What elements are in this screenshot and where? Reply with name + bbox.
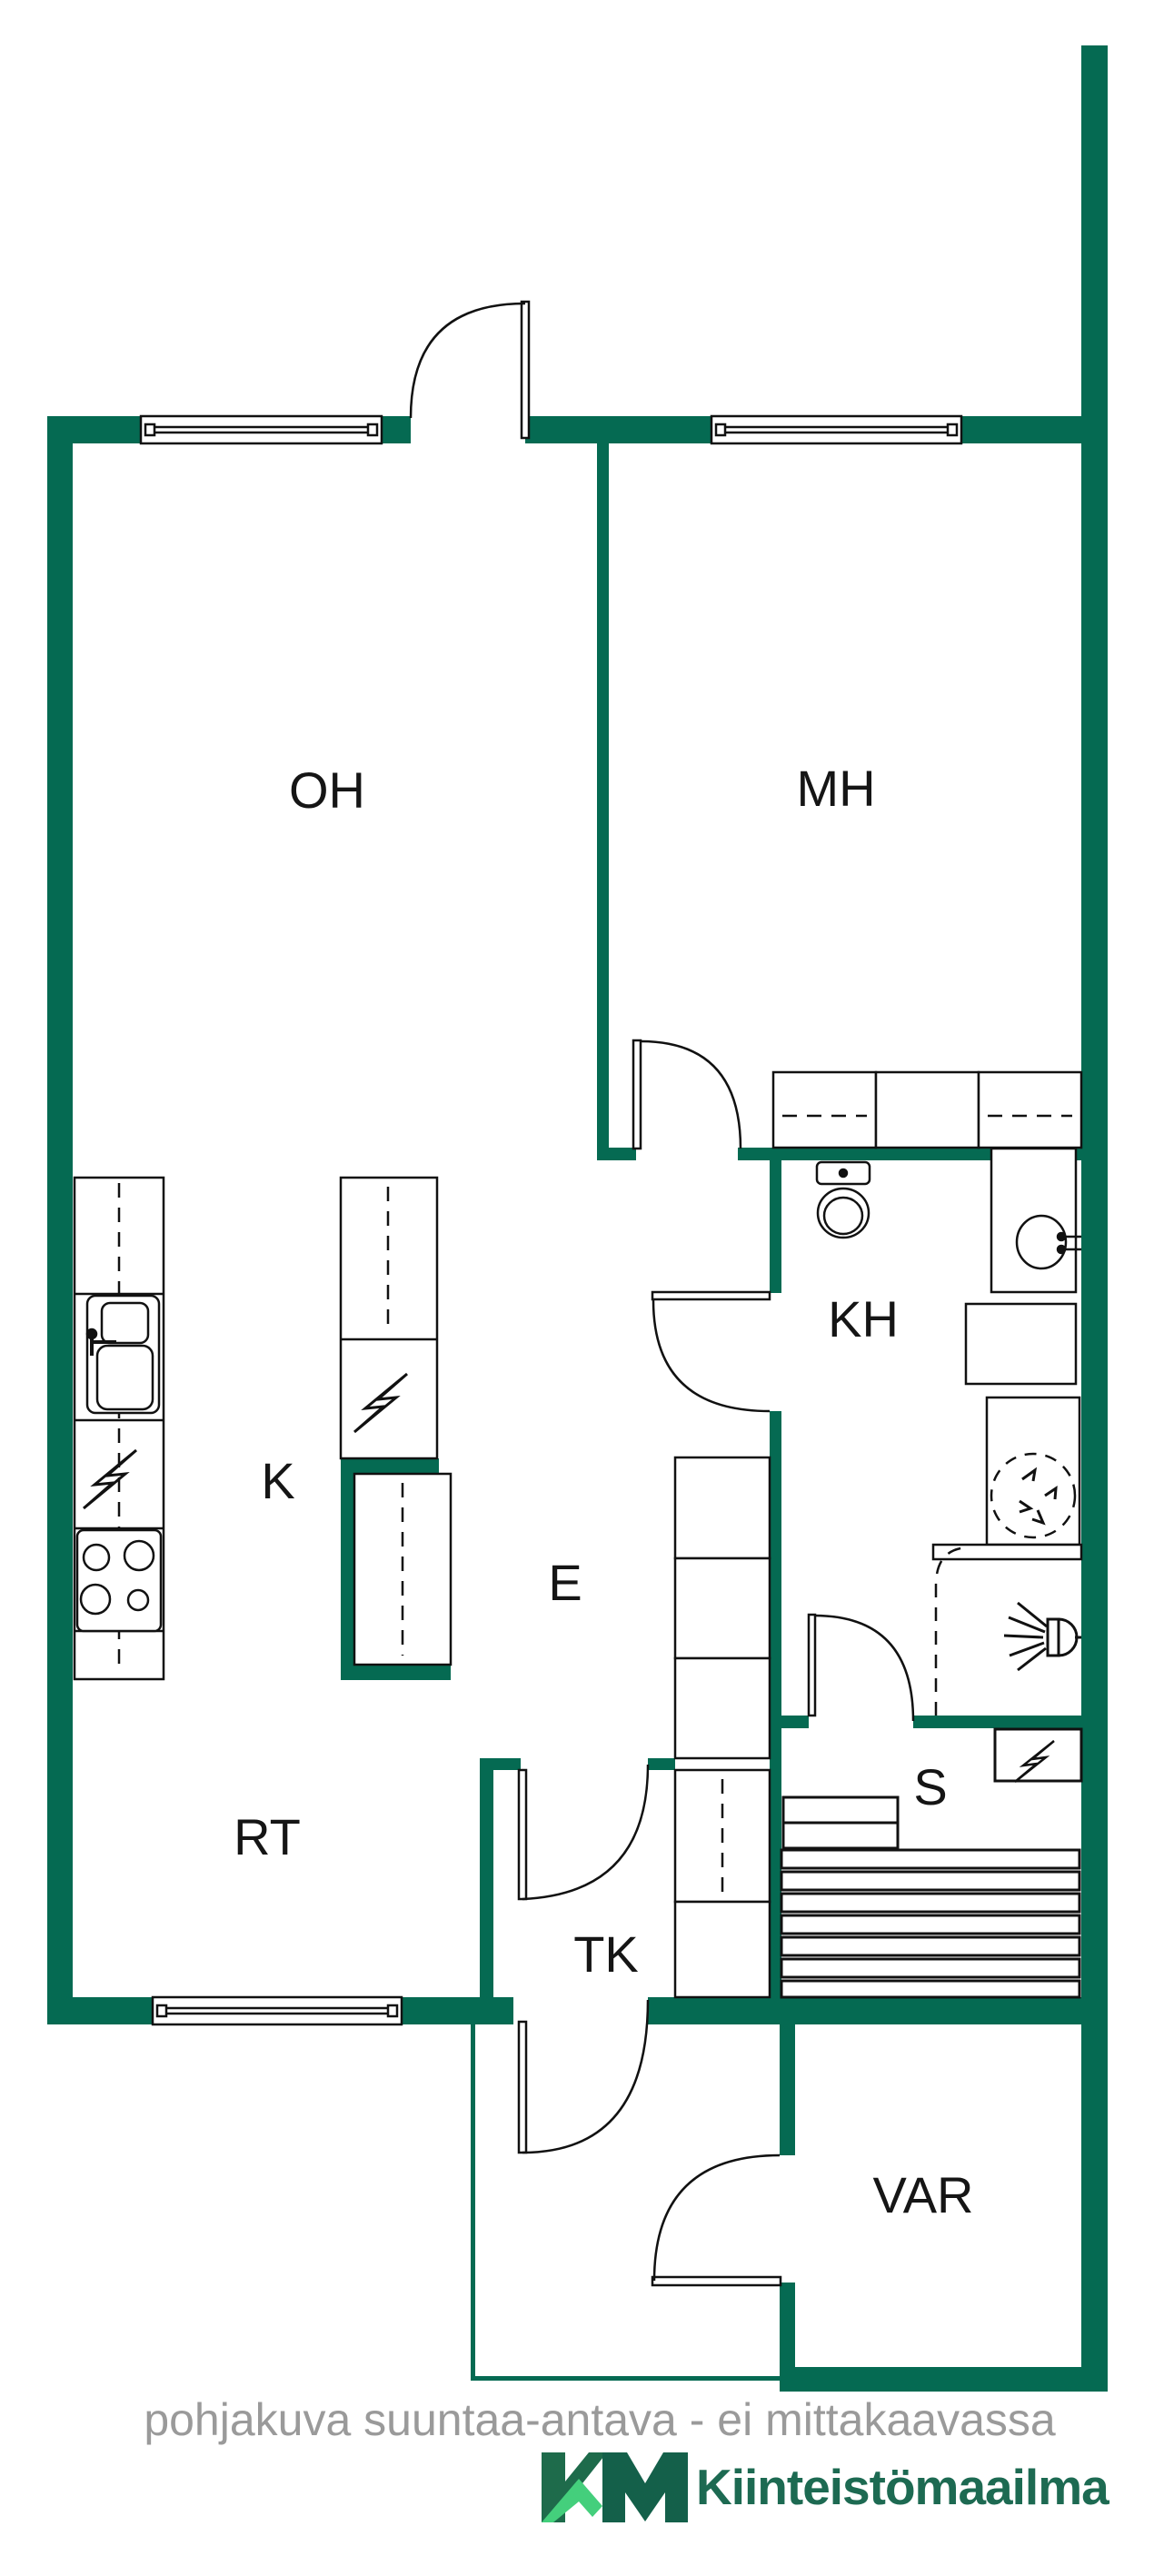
mh-wardrobes bbox=[773, 1072, 1081, 1148]
wall-top-mid2 bbox=[525, 416, 711, 443]
shower-curtain-line bbox=[936, 1547, 969, 1716]
floor-plan-page: OH MH K KH E RT S TK VAR pohjakuva suunt… bbox=[0, 0, 1154, 2576]
terrace-outline-left bbox=[471, 2024, 475, 2381]
stove-icon bbox=[77, 1530, 161, 1631]
tk-exterior-door bbox=[519, 2000, 648, 2153]
room-label-k: K bbox=[261, 1456, 294, 1507]
windows bbox=[141, 416, 961, 2024]
kitchen-island-2 bbox=[354, 1474, 451, 1665]
room-label-oh: OH bbox=[289, 765, 365, 816]
window-mh bbox=[711, 416, 961, 443]
window-oh bbox=[141, 416, 382, 443]
wall-mh-bottom-1 bbox=[609, 1148, 636, 1160]
brand-logo: Kiinteistömaailma bbox=[542, 2450, 1109, 2524]
kitchen-counter bbox=[75, 1178, 164, 1679]
wall-tk-left bbox=[480, 1770, 493, 1997]
brand-logo-text: Kiinteistömaailma bbox=[696, 2451, 1109, 2523]
sauna-heater-icon bbox=[995, 1729, 1081, 1782]
wall-kh-s-1 bbox=[780, 1716, 809, 1728]
wall-s-left bbox=[770, 1728, 781, 1997]
wall-tk-top-1 bbox=[480, 1758, 521, 1770]
room-label-mh: MH bbox=[796, 763, 875, 814]
room-label-kh: KH bbox=[828, 1294, 899, 1345]
km-logo-icon bbox=[542, 2451, 689, 2523]
shower-head-icon bbox=[1004, 1603, 1081, 1670]
wall-bottom-mid bbox=[402, 1997, 513, 2024]
floor-plan-drawing bbox=[0, 0, 1154, 2576]
wall-bottom-left bbox=[47, 1997, 153, 2024]
mh-door bbox=[633, 1040, 741, 1149]
sauna-door bbox=[809, 1615, 913, 1721]
wall-kitchen-stub bbox=[341, 1458, 439, 1474]
room-label-var: VAR bbox=[873, 2170, 974, 2221]
wall-var-bottom bbox=[780, 2367, 1108, 2392]
wall-kh-left-lower bbox=[770, 1411, 781, 1728]
wall-top-mid bbox=[382, 416, 411, 443]
hall-closets bbox=[675, 1457, 770, 1997]
sauna-benches bbox=[781, 1797, 1079, 1997]
window-rt bbox=[153, 1997, 402, 2024]
tk-inner-door bbox=[519, 1765, 648, 1899]
kitchen-sink-icon bbox=[87, 1296, 159, 1413]
wall-kh-s-2 bbox=[913, 1716, 1081, 1728]
wall-left bbox=[47, 416, 73, 2024]
wall-kh-left-upper bbox=[770, 1160, 781, 1293]
wall-bottom-right bbox=[648, 1997, 1108, 2024]
wall-kitchen-bottom bbox=[341, 1665, 451, 1680]
bathroom-shelf bbox=[933, 1545, 1081, 1559]
washing-machine-icon bbox=[987, 1397, 1079, 1545]
kitchen-island-1 bbox=[341, 1178, 437, 1458]
wall-tk-top-2 bbox=[648, 1758, 675, 1770]
bathroom-fixtures bbox=[817, 1149, 1081, 1716]
toilet-icon bbox=[817, 1162, 870, 1238]
entrance-door bbox=[411, 302, 529, 438]
room-label-e: E bbox=[548, 1557, 582, 1608]
room-label-tk: TK bbox=[573, 1929, 639, 1980]
var-door bbox=[652, 2155, 781, 2285]
terrace-outline-bottom bbox=[471, 2376, 784, 2381]
walls bbox=[47, 45, 1108, 2392]
wall-right bbox=[1081, 45, 1108, 2392]
room-label-rt: RT bbox=[234, 1812, 301, 1863]
disclaimer-text: pohjakuva suuntaa-antava - ei mittakaava… bbox=[23, 2395, 1154, 2445]
wall-kitchen-vert bbox=[341, 1458, 354, 1680]
wall-oh-mh-divider bbox=[597, 443, 609, 1160]
wall-var-left-upper bbox=[780, 2024, 795, 2155]
washbasin-icon bbox=[991, 1149, 1081, 1292]
room-label-s: S bbox=[913, 1762, 947, 1813]
bathroom-cabinet bbox=[966, 1304, 1076, 1384]
kh-door bbox=[652, 1292, 770, 1411]
